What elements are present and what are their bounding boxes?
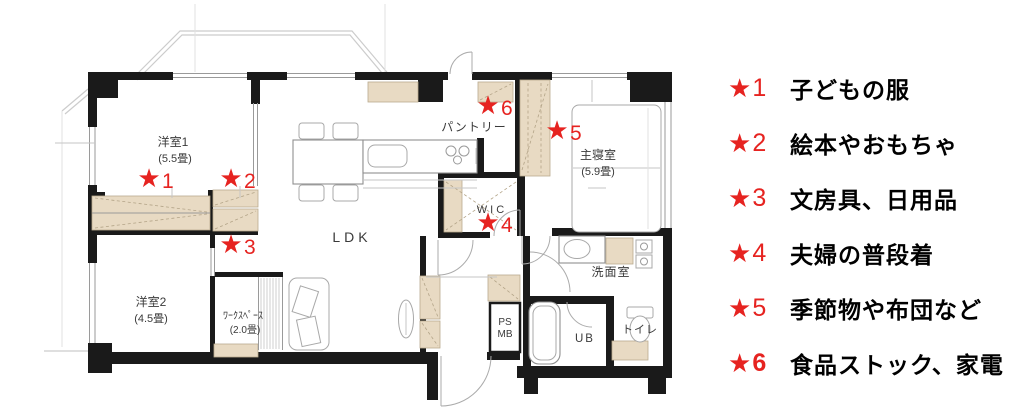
room-label-bath: UB: [575, 333, 595, 345]
legend-label: 食品ストック、家電: [790, 346, 1004, 380]
legend-item-5: ★5 季節物や布団など: [728, 291, 982, 325]
room-label-washroom: 洗面室: [591, 264, 630, 279]
marker-number: 1: [162, 170, 174, 193]
legend-label: 夫婦の普段着: [790, 236, 934, 270]
star-icon: ★: [728, 130, 751, 156]
marker-number: 3: [244, 236, 256, 259]
legend: ★1 子どもの服 ★2 絵本やおもちゃ ★3 文房具、日用品 ★4 夫婦の普段着…: [728, 0, 1024, 420]
marker-number: 5: [570, 122, 582, 145]
floorplan-svg: 洋室1 (5.5畳) 洋室2 (4.5畳) ﾜｰｸｽﾍﾟｰｽ (2.0畳) LD…: [0, 0, 720, 420]
legend-number: 2: [752, 131, 766, 156]
marker-1: ★ 1: [137, 163, 173, 193]
dining-chair: [333, 123, 358, 139]
dining-chair: [299, 123, 324, 139]
room-size-bedroom2: (4.5畳): [134, 312, 168, 325]
legend-label: 季節物や布団など: [790, 291, 982, 325]
legend-item-6: ★6 食品ストック、家電: [728, 346, 1004, 380]
marker-4: ★ 4: [476, 207, 513, 237]
pantry-door-arc: [450, 52, 472, 74]
legend-label: 絵本やおもちゃ: [790, 126, 958, 160]
legend-number: 4: [752, 241, 766, 266]
vanity-sink: [564, 240, 590, 259]
room-label-bedroom2: 洋室2: [136, 294, 167, 309]
workspace-desk: [214, 344, 258, 357]
legend-item-3: ★3 文房具、日用品: [728, 181, 958, 215]
legend-item-2: ★2 絵本やおもちゃ: [728, 126, 958, 160]
room-size-bedroom1: (5.5畳): [158, 152, 192, 165]
star-icon: ★: [219, 229, 242, 259]
dining-chair: [333, 185, 358, 201]
dining-table: [293, 140, 363, 184]
room-label-mb: MB: [498, 329, 513, 340]
star-icon: ★: [476, 207, 499, 237]
washer-space: [606, 238, 633, 264]
dining-chair: [299, 185, 324, 201]
room-label-toilet: トイレ: [622, 324, 658, 336]
floorplan-image: 洋室1 (5.5畳) 洋室2 (4.5畳) ﾜｰｸｽﾍﾟｰｽ (2.0畳) LD…: [0, 0, 720, 420]
room-label-workspace: ﾜｰｸｽﾍﾟｰｽ: [223, 310, 263, 322]
legend-item-1: ★1 子どもの服: [728, 71, 910, 105]
room-label-ps: PS: [498, 317, 512, 328]
marker-number: 6: [501, 97, 513, 120]
star-icon: ★: [545, 115, 568, 145]
legend-number: 5: [752, 296, 766, 321]
room-label-bedroom1: 洋室1: [158, 134, 189, 149]
legend-number: 1: [752, 76, 766, 101]
star-icon: ★: [728, 295, 751, 321]
star-icon: ★: [476, 90, 499, 120]
room-label-master: 主寝室: [580, 147, 616, 162]
legend-label: 文房具、日用品: [790, 181, 958, 215]
star-icon: ★: [728, 75, 751, 101]
shoe-cabinet: [420, 276, 440, 319]
kitchen-storage: [368, 82, 418, 102]
star-icon: ★: [137, 163, 160, 193]
room-label-ldk-text: LDK: [332, 229, 371, 245]
star-icon: ★: [728, 350, 751, 376]
marker-number: 2: [244, 170, 256, 193]
star-icon: ★: [219, 163, 242, 193]
star-icon: ★: [728, 240, 751, 266]
legend-label: 子どもの服: [790, 71, 910, 105]
star-icon: ★: [728, 185, 751, 211]
marker-number: 4: [501, 214, 513, 237]
ldk-door-arc: [438, 240, 473, 275]
kitchen-sink: [368, 145, 407, 167]
toilet-cabinet: [612, 341, 648, 360]
legend-number: 3: [752, 186, 766, 211]
bath-door-arc: [567, 302, 592, 327]
room-size-workspace: (2.0畳): [230, 324, 261, 336]
room-size-master: (5.9畳): [581, 165, 615, 178]
floorplan-page: 洋室1 (5.5畳) 洋室2 (4.5畳) ﾜｰｸｽﾍﾟｰｽ (2.0畳) LD…: [0, 0, 1024, 420]
legend-item-4: ★4 夫婦の普段着: [728, 236, 934, 270]
marker-2: ★ 2: [219, 163, 255, 193]
entrance-door-arc: [441, 356, 491, 406]
legend-number: 6: [752, 351, 766, 376]
room-label-pantry: パントリー: [441, 120, 507, 134]
